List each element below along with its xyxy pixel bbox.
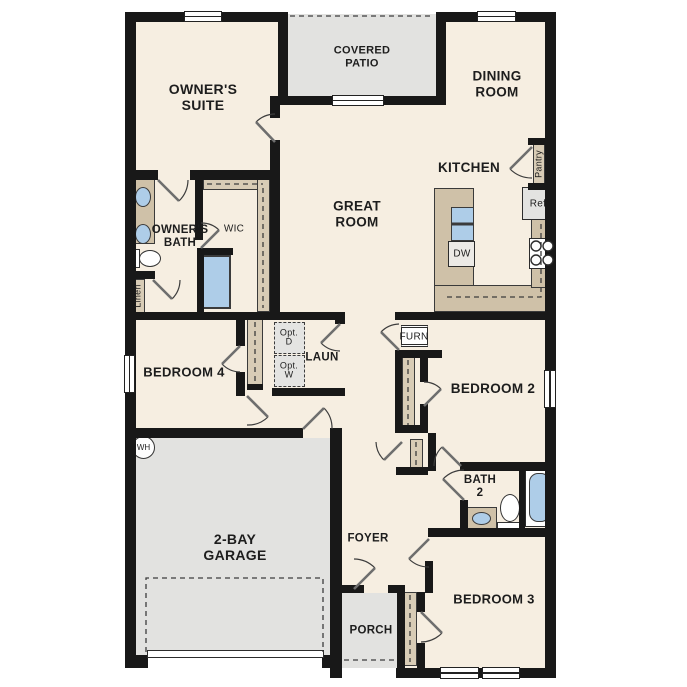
water-heater-label: WH bbox=[137, 443, 150, 452]
label-opt-d: Opt. D bbox=[280, 329, 298, 348]
label-opt-w: Opt. W bbox=[280, 362, 298, 381]
wall bbox=[125, 12, 136, 668]
wall bbox=[270, 180, 280, 314]
room-label-laundry: LAUN bbox=[305, 351, 338, 364]
wall bbox=[125, 655, 148, 668]
bedroom3-closet bbox=[403, 592, 417, 666]
window bbox=[544, 370, 556, 408]
wall bbox=[436, 12, 446, 105]
wall bbox=[197, 255, 204, 312]
wall bbox=[395, 312, 545, 320]
room-label-foyer: FOYER bbox=[347, 532, 388, 545]
wall bbox=[125, 312, 337, 320]
wall bbox=[397, 585, 405, 668]
wall bbox=[428, 433, 436, 471]
bedroom2-closet bbox=[402, 357, 415, 427]
wall bbox=[125, 170, 158, 180]
label-ref: Ref bbox=[530, 198, 546, 210]
room-label-kitchen: KITCHEN bbox=[438, 160, 500, 176]
room-label-bath-2: BATH 2 bbox=[464, 474, 496, 500]
label-furnace: FURN bbox=[400, 331, 429, 343]
wic-shelf-right bbox=[257, 177, 270, 312]
wall bbox=[417, 643, 425, 668]
wall bbox=[270, 96, 280, 118]
room-label-bedroom-3: BEDROOM 3 bbox=[453, 593, 534, 608]
floor-plan: WH bbox=[0, 0, 687, 687]
wall bbox=[395, 425, 428, 433]
wall bbox=[278, 96, 334, 105]
wall bbox=[420, 358, 428, 382]
wall bbox=[428, 528, 556, 537]
room-label-covered-patio: COVERED PATIO bbox=[334, 44, 391, 69]
bath2-sink bbox=[472, 512, 491, 525]
patio-slider-door bbox=[332, 95, 384, 106]
wall bbox=[190, 170, 280, 180]
wall bbox=[425, 561, 433, 593]
wall bbox=[545, 12, 556, 678]
window bbox=[124, 355, 135, 393]
room-label-bedroom-4: BEDROOM 4 bbox=[143, 366, 224, 381]
wall bbox=[396, 467, 428, 475]
window bbox=[482, 667, 520, 679]
wall bbox=[125, 271, 155, 279]
room-label-garage: 2-BAY GARAGE bbox=[203, 531, 266, 563]
window bbox=[184, 11, 222, 22]
wall bbox=[272, 388, 345, 396]
wall bbox=[395, 358, 402, 432]
garage-door bbox=[147, 650, 324, 658]
room-label-wic: WIC bbox=[224, 223, 244, 235]
room-label-great-room: GREAT ROOM bbox=[333, 198, 381, 229]
wall bbox=[278, 12, 288, 105]
room-label-owners-suite: OWNER'S SUITE bbox=[169, 81, 237, 113]
hall-closet bbox=[410, 439, 423, 468]
label-pantry: Pantry bbox=[534, 150, 543, 178]
kitchen-counter-bottom bbox=[434, 285, 554, 312]
bath2-toilet-bowl bbox=[500, 494, 520, 522]
wall bbox=[247, 384, 263, 390]
window bbox=[440, 667, 479, 679]
wall bbox=[460, 462, 556, 471]
toilet-bowl bbox=[139, 250, 161, 267]
wall bbox=[342, 585, 364, 593]
bedroom4-closet bbox=[247, 318, 263, 386]
wall bbox=[528, 138, 545, 145]
wall bbox=[236, 372, 245, 396]
wall bbox=[125, 428, 303, 438]
wall bbox=[236, 312, 245, 346]
wall bbox=[382, 96, 446, 105]
wall bbox=[395, 350, 442, 358]
room-label-owners-bath: OWNER'S BATH bbox=[152, 224, 209, 250]
room-label-bedroom-2: BEDROOM 2 bbox=[451, 381, 535, 397]
wall bbox=[335, 312, 345, 324]
vanity-sink bbox=[135, 187, 151, 207]
label-dw: DW bbox=[453, 248, 470, 260]
room-label-dining-room: DINING ROOM bbox=[472, 68, 521, 99]
wall bbox=[519, 471, 525, 528]
label-linen: Linen bbox=[133, 284, 142, 308]
room-label-porch: PORCH bbox=[349, 624, 392, 637]
kitchen-sink bbox=[451, 207, 474, 241]
vanity-sink bbox=[135, 224, 151, 244]
wall bbox=[330, 428, 342, 678]
window bbox=[477, 11, 516, 22]
shower bbox=[202, 255, 231, 309]
wall bbox=[417, 592, 425, 612]
wall bbox=[528, 183, 545, 190]
